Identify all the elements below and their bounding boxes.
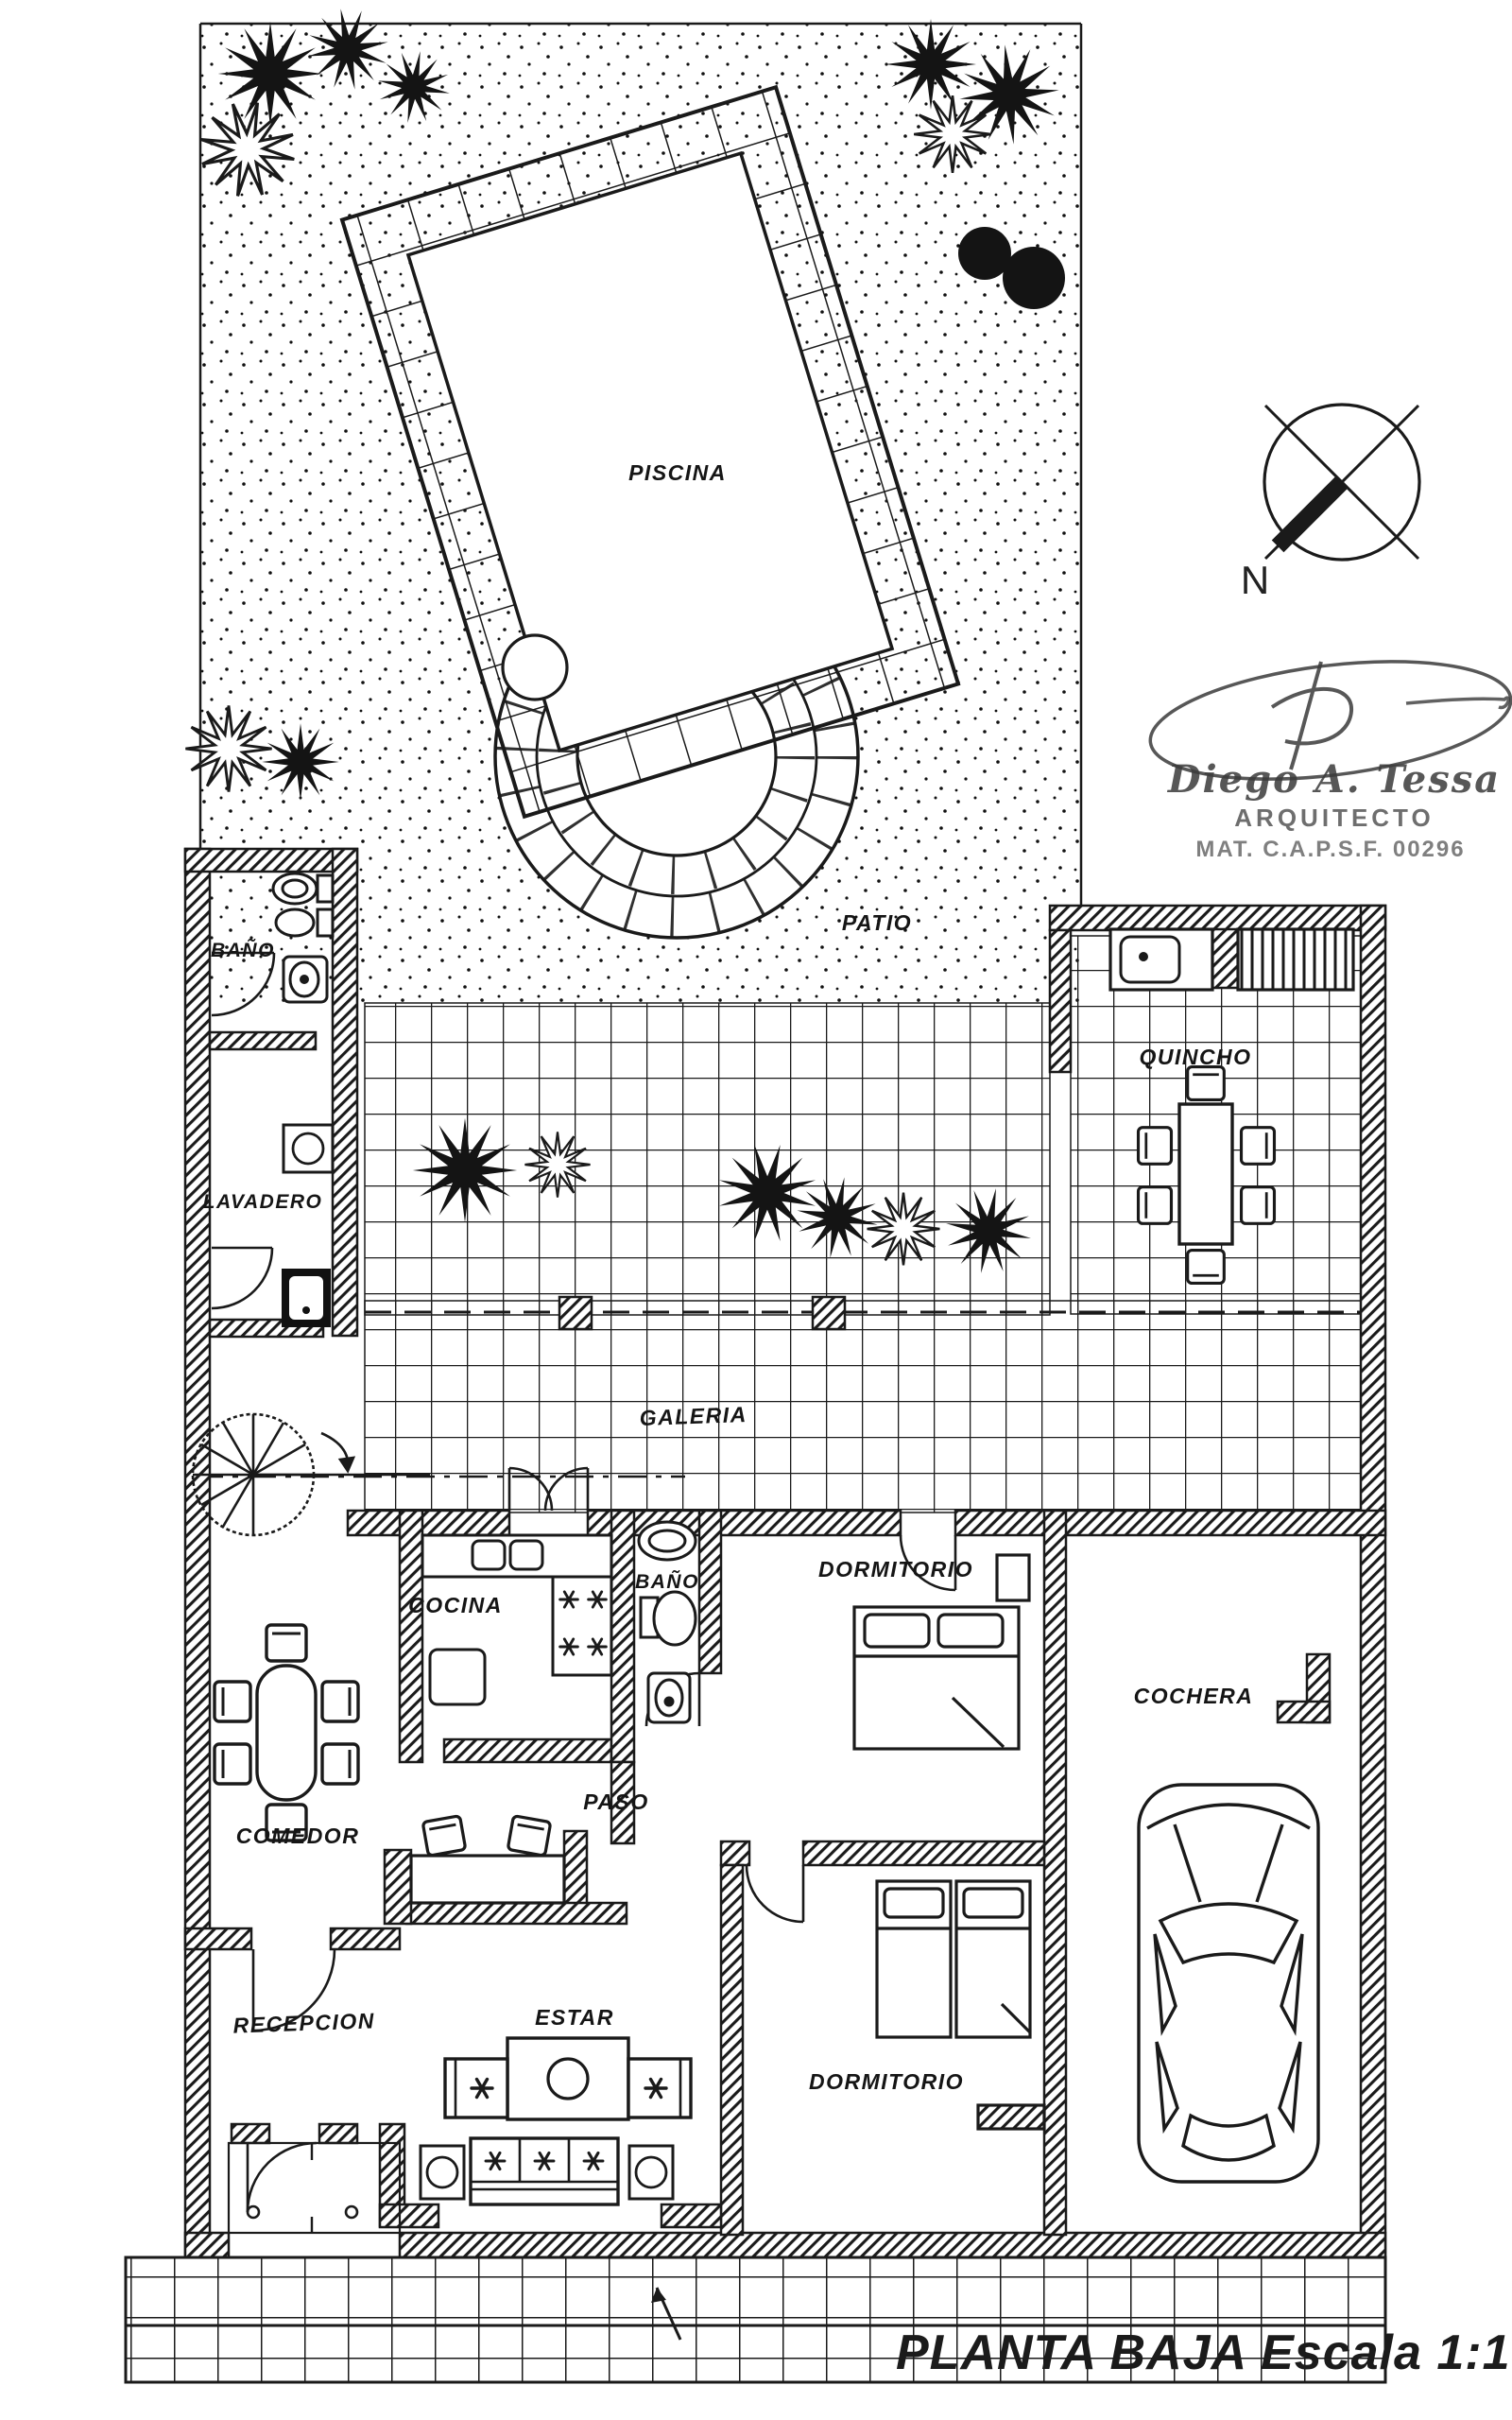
dining-table	[215, 1625, 358, 1841]
room-label-paso: PASO	[583, 1789, 648, 1814]
quincho-grill	[1238, 929, 1353, 990]
pool-ladder-circle	[503, 635, 567, 700]
room-label-patio: PATIO	[842, 910, 912, 935]
room-label-dormitorio-2: DORMITORIO	[809, 2069, 964, 2094]
room-label-cocina: COCINA	[408, 1593, 503, 1617]
plan-scale-text: Escala 1:100	[1261, 2325, 1512, 2380]
room-label-recepcion: RECEPCION	[232, 2008, 375, 2037]
room-label-cochera: COCHERA	[1134, 1684, 1254, 1708]
room-label-bano: BAÑO	[635, 1571, 699, 1593]
room-label-lavadero: LAVADERO	[203, 1191, 323, 1213]
plan-title: PLANTA BAJAEscala 1:100	[896, 2325, 1512, 2380]
architectural-plan-page: PISCINA PATIO GALERIA QUINCHO	[0, 0, 1512, 2420]
room-label-piscina: PISCINA	[628, 460, 727, 485]
room-label-dormitorio-1: DORMITORIO	[818, 1557, 973, 1582]
compass-needle	[1272, 476, 1349, 553]
estar-furniture	[421, 2038, 691, 2204]
kitchen-fixtures	[422, 1535, 611, 1704]
bathroom-fixtures	[639, 1522, 696, 1722]
room-label-galeria: GALERIA	[639, 1402, 747, 1430]
architect-registration: MAT. C.A.P.S.F. 00296	[1195, 837, 1465, 862]
compass-north-label: N	[1241, 558, 1269, 602]
room-label-bano-servicio: BAÑO	[211, 940, 275, 961]
lavadero-fixtures	[282, 1125, 333, 1327]
bedroom1-furniture	[854, 1555, 1029, 1749]
car	[1139, 1785, 1318, 2182]
desk-area	[411, 1816, 564, 1903]
room-label-estar: ESTAR	[535, 2005, 614, 2030]
floor-plan-drawing: PISCINA PATIO GALERIA QUINCHO	[0, 0, 1512, 2420]
entry-porch	[229, 2143, 400, 2233]
architect-name: Diego A. Tessa	[1167, 757, 1501, 802]
architect-profession: ARQUITECTO	[1234, 804, 1434, 832]
plan-title-text: PLANTA BAJA	[896, 2325, 1247, 2380]
compass-rose: N	[1241, 405, 1419, 602]
room-label-comedor: COMEDOR	[236, 1824, 360, 1848]
signature-flourish	[1272, 662, 1351, 769]
architect-signature: Diego A. Tessa ARQUITECTO MAT. C.A.P.S.F…	[1143, 644, 1512, 862]
